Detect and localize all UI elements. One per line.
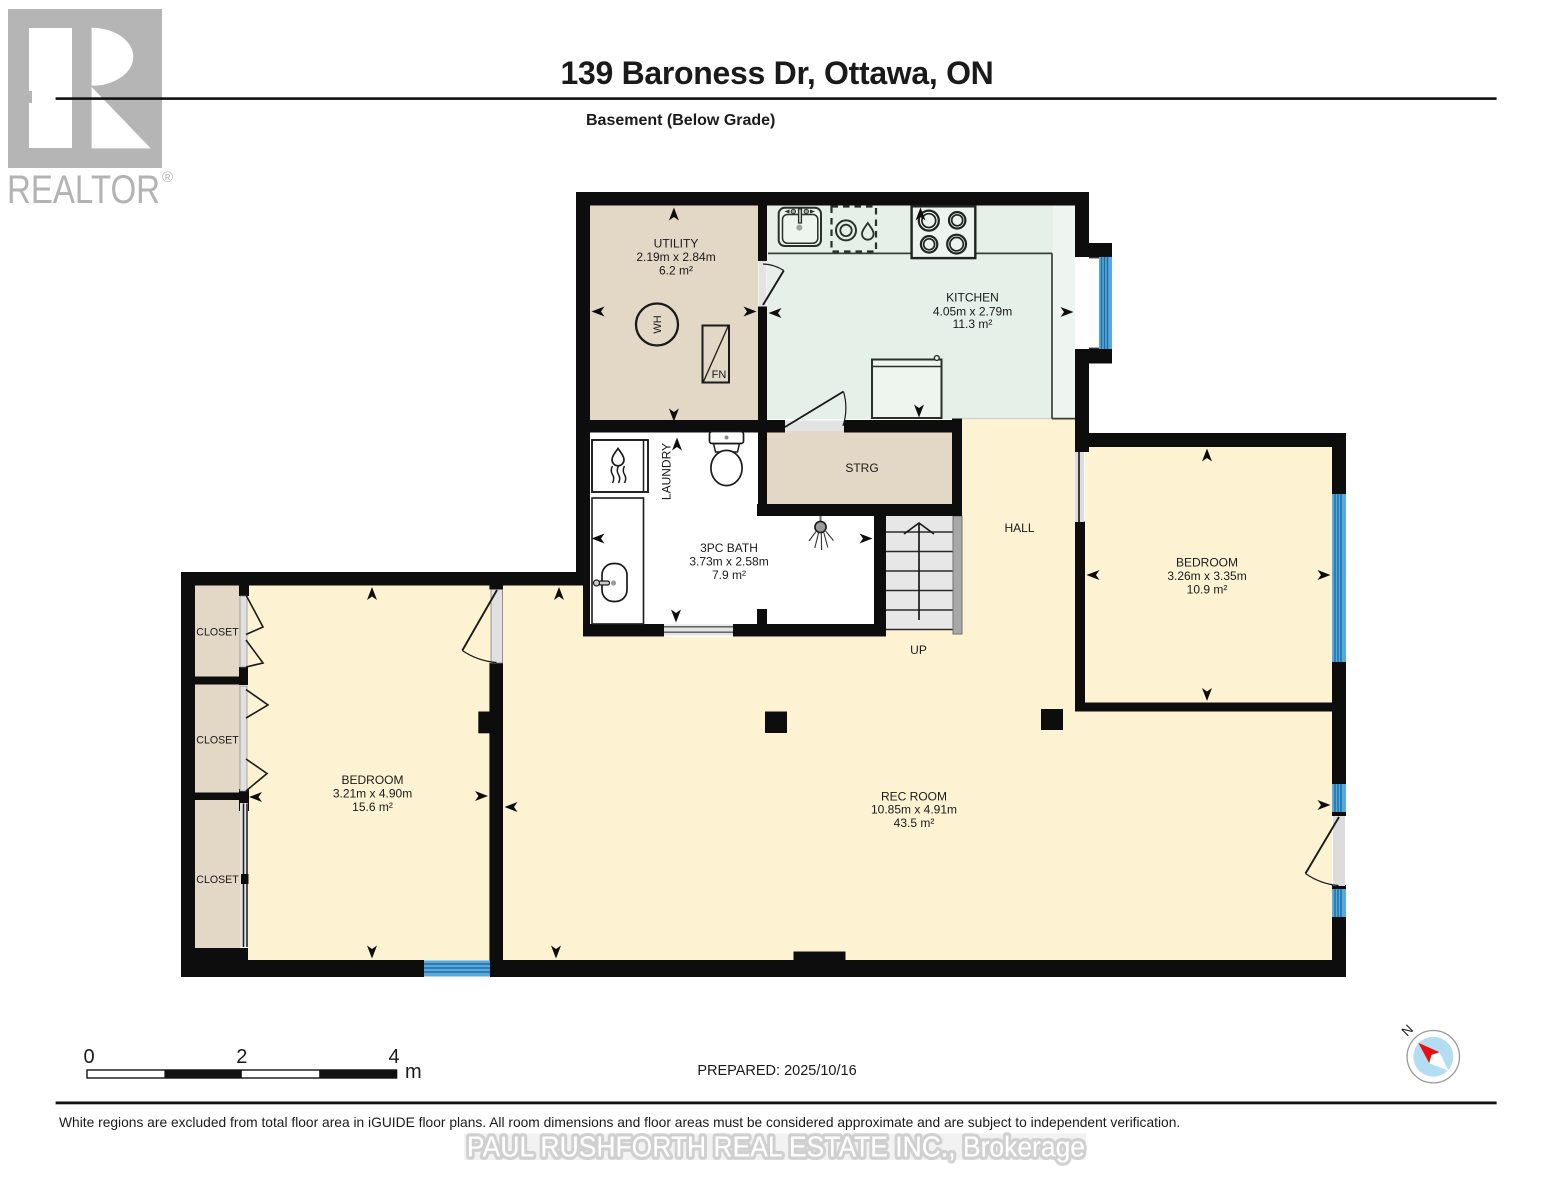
- svg-text:BEDROOM: BEDROOM: [341, 773, 403, 787]
- svg-text:10.85m x 4.91m: 10.85m x 4.91m: [871, 803, 957, 817]
- svg-text:3.26m x 3.35m: 3.26m x 3.35m: [1167, 569, 1246, 583]
- svg-text:m: m: [405, 1061, 422, 1083]
- svg-text:10.9 m²: 10.9 m²: [1187, 583, 1228, 597]
- svg-text:3.73m x 2.58m: 3.73m x 2.58m: [689, 555, 768, 569]
- svg-text:White regions are excluded fro: White regions are excluded from total fl…: [59, 1115, 1180, 1130]
- svg-text:7.9 m²: 7.9 m²: [712, 568, 746, 582]
- svg-text:PAUL RUSHFORTH REAL ESTATE INC: PAUL RUSHFORTH REAL ESTATE INC., Brokera…: [467, 1132, 1085, 1164]
- svg-text:STRG: STRG: [845, 461, 878, 475]
- svg-text:BEDROOM: BEDROOM: [1176, 556, 1238, 570]
- svg-text:WH: WH: [652, 315, 664, 333]
- svg-text:UTILITY: UTILITY: [654, 237, 699, 251]
- svg-text:UP: UP: [910, 643, 927, 657]
- svg-text:REC ROOM: REC ROOM: [881, 789, 947, 803]
- svg-text:139 Baroness Dr, Ottawa, ON: 139 Baroness Dr, Ottawa, ON: [561, 55, 994, 91]
- svg-text:CLOSET: CLOSET: [196, 627, 239, 639]
- svg-text:3.21m x 4.90m: 3.21m x 4.90m: [333, 787, 412, 801]
- svg-text:3PC BATH: 3PC BATH: [700, 541, 758, 555]
- svg-text:6.2 m²: 6.2 m²: [659, 264, 693, 278]
- svg-text:CLOSET: CLOSET: [196, 874, 239, 886]
- svg-text:2.19m x 2.84m: 2.19m x 2.84m: [636, 250, 715, 264]
- svg-text:HALL: HALL: [1004, 521, 1034, 535]
- svg-text:LAUNDRY: LAUNDRY: [660, 443, 674, 500]
- svg-text:0: 0: [83, 1046, 94, 1068]
- svg-text:®: ®: [162, 169, 173, 186]
- svg-text:REALTOR: REALTOR: [7, 168, 160, 212]
- svg-text:15.6 m²: 15.6 m²: [352, 800, 393, 814]
- svg-text:CLOSET: CLOSET: [196, 735, 239, 747]
- svg-text:FN: FN: [712, 369, 727, 381]
- svg-text:PREPARED: 2025/10/16: PREPARED: 2025/10/16: [697, 1063, 856, 1079]
- svg-text:43.5 m²: 43.5 m²: [894, 816, 935, 830]
- svg-text:2: 2: [236, 1046, 247, 1068]
- svg-text:4: 4: [388, 1046, 399, 1068]
- svg-text:Basement (Below Grade): Basement (Below Grade): [586, 112, 775, 129]
- svg-text:KITCHEN: KITCHEN: [946, 291, 999, 305]
- svg-text:11.3 m²: 11.3 m²: [953, 317, 993, 331]
